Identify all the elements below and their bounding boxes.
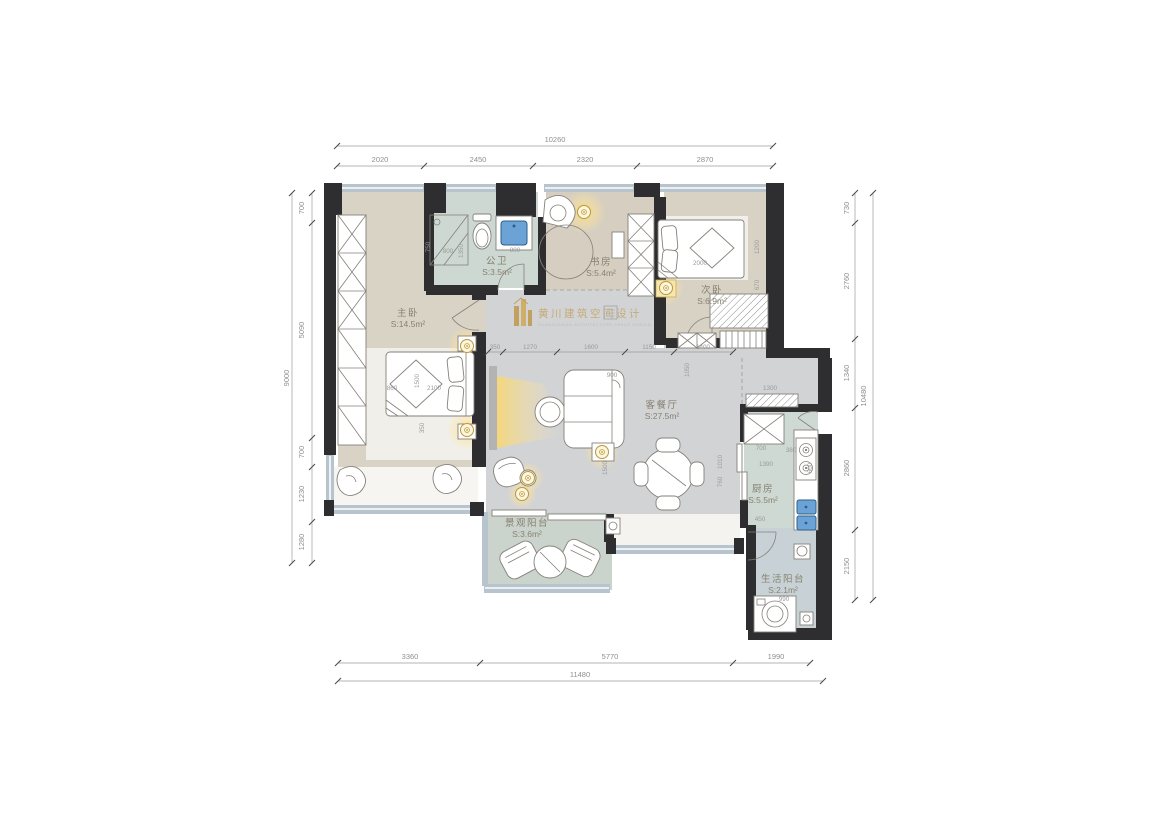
dimension-label: 9000 (282, 370, 291, 387)
room-area-life-balcony: S:2.1m² (768, 585, 798, 595)
washing-machine (754, 596, 796, 632)
window-master-left (326, 455, 334, 505)
room-label-study: 书房 (590, 256, 612, 268)
room-label-second-bedroom: 次卧 (701, 284, 723, 296)
dimension-label: 1050 (684, 363, 691, 378)
dimension-label: 900 (607, 372, 618, 379)
dimension-label: 750 (425, 241, 432, 252)
room-area-public-bathroom: S:3.5m² (482, 267, 512, 277)
dimension-label: 1390 (759, 461, 774, 468)
dimension-label: 1280 (297, 534, 306, 551)
dimension-label: 2100 (427, 385, 442, 392)
dimension-label: 1300 (763, 385, 778, 392)
dimension-label: 3360 (402, 652, 419, 661)
tv-media-wall (489, 366, 497, 450)
refrigerator (744, 414, 784, 444)
room-area-view-balcony: S:3.6m² (512, 529, 542, 539)
room-area-study: S:5.4m² (586, 268, 616, 278)
dimension-label: 1150 (642, 344, 656, 351)
dimension-label: 2760 (842, 273, 851, 290)
dimension-label: 860 (387, 385, 398, 392)
dimension-label: 990 (779, 596, 790, 603)
floor-plan-canvas: 黄川建筑空间设计 HUANGCHUAN ARCHITECTURE SPACE D… (0, 0, 1150, 813)
dimension-label: 760 (717, 476, 724, 487)
coffee-table (535, 397, 565, 427)
dimension-label: 1230 (297, 486, 306, 503)
dimension-label: 800 (510, 247, 521, 254)
dimension-label: 700 (756, 445, 767, 452)
room-area-living-dining: S:27.5m² (645, 411, 680, 421)
dimension-label: 1200 (754, 240, 761, 255)
master-wardrobe (338, 215, 366, 445)
dimension-label: 2320 (577, 155, 594, 164)
lamp-icon (578, 206, 591, 219)
window-living-bay (612, 545, 740, 554)
dimension-label: 11480 (570, 670, 590, 679)
living-bay-floor (614, 514, 740, 548)
dimension-label: 1010 (717, 455, 724, 470)
dimension-label: 2870 (697, 155, 714, 164)
window-top-bathroom (446, 184, 496, 192)
sofa (564, 370, 624, 448)
room-label-life-balcony: 生活阳台 (761, 573, 805, 585)
room-area-kitchen: S:5.5m² (748, 495, 778, 505)
dimension-label: 1500 (414, 374, 421, 389)
dimension-label: 700 (297, 446, 306, 459)
dimension-label: 2150 (842, 558, 851, 575)
window-master-bay (330, 505, 478, 514)
master-bed (386, 352, 474, 416)
dimension-label: 800 (443, 248, 454, 255)
dimension-label: 350 (419, 422, 426, 433)
floor-drain (800, 612, 813, 625)
dimension-label: 730 (842, 202, 851, 215)
window-view-balcony-left (482, 512, 488, 586)
brand-name: 黄川建筑空间设计 (538, 307, 642, 320)
window-top-master (340, 184, 424, 192)
dimension-label: 2450 (470, 155, 487, 164)
dimension-label: 1600 (584, 344, 599, 351)
lamp-icon (461, 424, 474, 437)
dimension-label: 380 (786, 447, 797, 454)
dimension-label: 1270 (523, 344, 538, 351)
dimension-label: 350 (490, 344, 501, 351)
ac-unit (606, 518, 620, 534)
dimension-label: 2000 (693, 260, 708, 267)
room-area-second-bedroom: S:6.9m² (697, 296, 727, 306)
lamp-icon (596, 446, 609, 459)
dimension-label: 10480 (859, 386, 868, 407)
dimension-label: 10260 (545, 135, 566, 144)
toilet (473, 214, 491, 249)
room-label-view-balcony: 景观阳台 (505, 517, 549, 529)
dimension-label: 1340 (842, 365, 851, 382)
window-top-study (544, 184, 634, 192)
window-top-second-bedroom (658, 184, 768, 192)
study-wardrobe (628, 214, 654, 296)
dimension-label: 2020 (372, 155, 389, 164)
dimension-label: 670 (754, 279, 761, 290)
dimension-label: 1400 (696, 344, 711, 351)
bathroom-sink (496, 216, 532, 250)
dimension-label: 5770 (602, 652, 619, 661)
room-label-living-dining: 客餐厅 (645, 399, 678, 411)
dimension-label: 1990 (768, 652, 785, 661)
room-label-kitchen: 厨房 (752, 483, 774, 495)
second-bedroom-cabinets (678, 331, 766, 348)
lamp-icon (516, 488, 529, 501)
window-view-balcony (484, 584, 610, 593)
dimension-label: 1500 (602, 461, 609, 476)
room-label-public-bathroom: 公卫 (486, 256, 508, 267)
lamp-icon (461, 340, 474, 353)
entry-shoe-cabinet (746, 394, 798, 407)
dimension-label: 450 (755, 516, 766, 523)
lamp-icon (522, 472, 535, 485)
room-label-master-bedroom: 主卧 (397, 307, 419, 319)
lamp-icon (660, 282, 673, 295)
brand-subtitle: HUANGCHUAN ARCHITECTURE SPACE DESIGN (538, 322, 651, 327)
dimension-label: 1350 (458, 244, 465, 259)
dimension-label: 600 (807, 462, 814, 473)
second-bed (658, 220, 744, 278)
study-desk (612, 232, 624, 258)
dimension-label: 5090 (297, 322, 306, 339)
dimension-label: 700 (297, 202, 306, 215)
room-area-master-bedroom: S:14.5m² (391, 319, 426, 329)
dimension-label: 2860 (842, 460, 851, 477)
water-heater (794, 544, 810, 559)
floor-plan-drawing: 黄川建筑空间设计 HUANGCHUAN ARCHITECTURE SPACE D… (0, 0, 1150, 813)
